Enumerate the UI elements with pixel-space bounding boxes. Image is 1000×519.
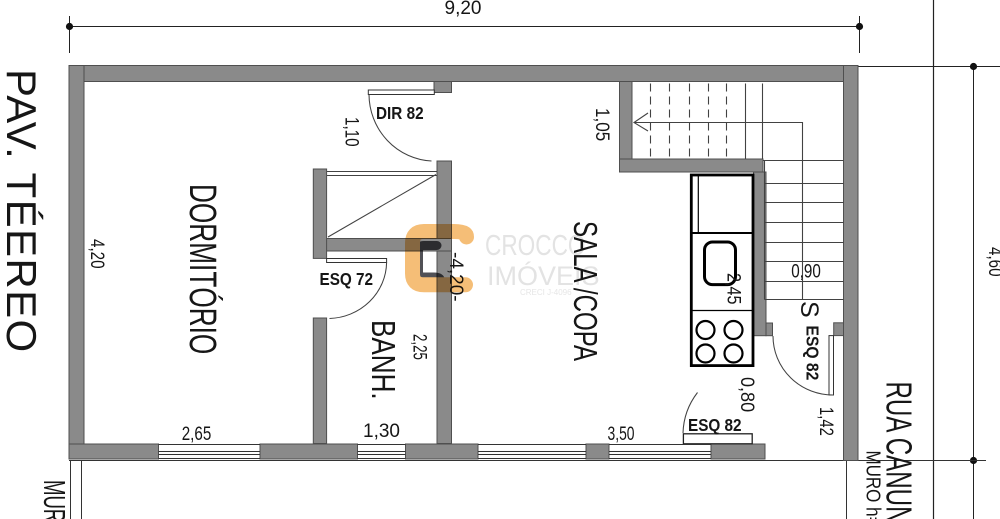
svg-text:0,80: 0,80	[737, 377, 759, 412]
svg-text:ESQ 72: ESQ 72	[320, 269, 374, 289]
svg-text:CROCCO: CROCCO	[485, 228, 586, 261]
svg-text:PAV. TÉEREO: PAV. TÉEREO	[0, 69, 45, 354]
svg-text:1,30: 1,30	[363, 421, 400, 442]
svg-text:1,05: 1,05	[592, 108, 613, 141]
svg-text:4,20: 4,20	[87, 239, 109, 269]
svg-text:MURO h=1,80: MURO h=1,80	[862, 451, 885, 519]
svg-text:IMÓVEIS: IMÓVEIS	[487, 260, 600, 291]
svg-text:BANH.: BANH.	[364, 320, 401, 400]
svg-text:-4,20-: -4,20-	[445, 252, 466, 302]
svg-text:2,45: 2,45	[723, 273, 745, 305]
svg-text:DIR 82: DIR 82	[376, 103, 424, 123]
svg-text:S: S	[795, 301, 823, 318]
svg-text:MURO h=1,80: MURO h=1,80	[37, 480, 71, 519]
svg-text:3,50: 3,50	[608, 423, 635, 445]
svg-text:2,25: 2,25	[409, 334, 430, 360]
svg-text:9,20: 9,20	[445, 0, 482, 19]
svg-text:DORMITÓRIO: DORMITÓRIO	[182, 184, 225, 354]
svg-text:4,60: 4,60	[985, 247, 1000, 277]
svg-text:2,65: 2,65	[182, 422, 212, 444]
svg-text:1,10: 1,10	[341, 117, 363, 147]
svg-text:0,90: 0,90	[791, 260, 821, 282]
svg-text:ESQ 82: ESQ 82	[688, 415, 742, 435]
svg-text:ESQ 82: ESQ 82	[802, 326, 822, 381]
svg-text:1,42: 1,42	[816, 407, 837, 436]
svg-text:CRECI J-4096: CRECI J-4096	[520, 288, 572, 297]
